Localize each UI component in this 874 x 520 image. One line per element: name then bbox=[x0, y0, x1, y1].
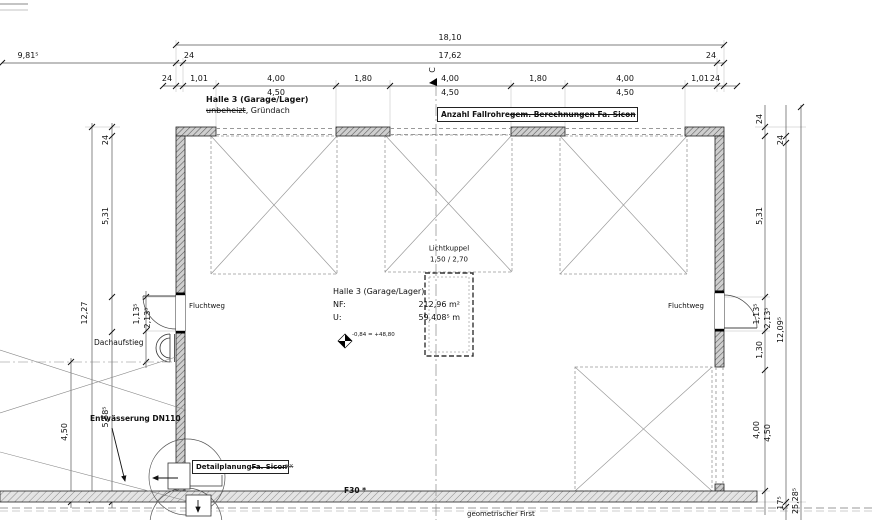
dimension-lines bbox=[2, 45, 801, 520]
fallrohre-note-text: Anzahl Fallrohre bbox=[441, 110, 510, 119]
lichtkuppel-label: Lichtkuppel bbox=[429, 246, 469, 253]
floor-plan: 18,10 9,81⁵ 24 17,62 24 24 1,01 4,00 1,8… bbox=[0, 0, 874, 520]
dim-left-bottom: 4,50 bbox=[61, 423, 69, 441]
hall-header-subtitle: unbeheizt, Gründach bbox=[206, 107, 290, 115]
axis-c-label: C bbox=[429, 67, 437, 73]
door-right bbox=[715, 291, 758, 332]
subtitle-rest-text: , Gründach bbox=[246, 106, 290, 115]
dim-top-left-offset: 9,81⁵ bbox=[17, 52, 38, 60]
wall-right-mid bbox=[715, 329, 724, 367]
wall-left-upper bbox=[176, 136, 185, 295]
dim-right-upper: 5,31 bbox=[756, 207, 764, 225]
dim-right-gate-axis: 4,50 bbox=[764, 424, 772, 442]
room-nf-value: 212,96 m² bbox=[390, 301, 460, 309]
room-level-value: -0,84 = +48,80 bbox=[352, 333, 395, 339]
wall-top-pillar-1 bbox=[336, 127, 390, 136]
dim-right-bottom: 17⁵ bbox=[777, 496, 785, 509]
geometrischer-first-label: geometrischer First bbox=[467, 511, 535, 518]
wall-right-upper bbox=[715, 136, 724, 293]
dim-right-wall-a: 24 bbox=[756, 114, 764, 124]
f30-label: F30 * bbox=[344, 487, 366, 495]
roof-ladder-symbol bbox=[156, 334, 175, 362]
room-nf-label: NF: bbox=[333, 301, 346, 309]
dim-right-door-full: 2,13⁵ bbox=[764, 307, 772, 328]
detailplanung-note-text: Detailplanung bbox=[196, 463, 252, 471]
room-u-value: 59,408⁵ m bbox=[390, 314, 460, 322]
top-openings bbox=[216, 129, 685, 135]
dim-left-wall: 24 bbox=[102, 135, 110, 145]
dim-seg-8: 24 bbox=[710, 75, 720, 83]
dim-seg-2: 4,00 bbox=[267, 75, 285, 83]
dim-right-wall-b: 24 bbox=[777, 135, 785, 145]
detailplanung-note-struck: Fa. Sicon bbox=[252, 463, 288, 471]
dim-right-mid: 1,30 bbox=[756, 341, 764, 359]
fluchtweg-left-label: Fluchtweg bbox=[189, 303, 225, 310]
dim-sub-1: 4,50 bbox=[441, 89, 459, 97]
dim-seg-4: 4,00 bbox=[441, 75, 459, 83]
downpipe-box-2 bbox=[186, 495, 211, 516]
dim-left-door-full: 2,13⁵ bbox=[144, 307, 152, 328]
reference-lines bbox=[0, 350, 874, 511]
dim-right-door-clear: 1,13⁵ bbox=[753, 303, 761, 324]
dim-top-wall-right: 24 bbox=[706, 52, 716, 60]
dim-left-total: 12,27 bbox=[81, 302, 89, 325]
entwaesserung-label: Entwässerung DN110 bbox=[90, 415, 181, 423]
subtitle-struck-text: unbeheizt bbox=[206, 106, 246, 115]
dachaufstieg-label: Dachaufstieg bbox=[94, 339, 144, 347]
wall-top-pillar-2 bbox=[511, 127, 565, 136]
dimension-ticks bbox=[0, 42, 804, 510]
wall-top-right bbox=[685, 127, 724, 136]
dim-left-door-clear: 1,13⁵ bbox=[133, 303, 141, 324]
level-marker-icon bbox=[338, 334, 352, 348]
dim-left-upper: 5,31 bbox=[102, 207, 110, 225]
dim-top-wall-left: 24 bbox=[184, 52, 194, 60]
detailplanung-note-box: Detailplanung Fa. Sicon bbox=[192, 460, 289, 474]
dim-seg-5: 1,80 bbox=[529, 75, 547, 83]
dim-seg-6: 4,00 bbox=[616, 75, 634, 83]
room-u-label: U: bbox=[333, 314, 342, 322]
dim-seg-1: 1,01 bbox=[190, 75, 208, 83]
dim-sub-2: 4,50 bbox=[616, 89, 634, 97]
fluchtweg-right-label: Fluchtweg bbox=[668, 303, 704, 310]
extension-lines bbox=[60, 40, 806, 502]
dim-top-inner: 17,62 bbox=[439, 52, 462, 60]
wall-bottom bbox=[0, 491, 757, 502]
dim-seg-7: 1,01 bbox=[691, 75, 709, 83]
axis-c-marker bbox=[429, 78, 437, 86]
hall-header-title: Halle 3 (Garage/Lager) bbox=[206, 96, 308, 104]
downpipe-box-1 bbox=[168, 463, 190, 489]
neighbour-edge-top-left bbox=[0, 4, 28, 10]
dim-right-overall: 25,28⁵ bbox=[792, 488, 800, 514]
lichtkuppel-size-label: 1,50 / 2,70 bbox=[430, 257, 468, 264]
dim-right-gate: 4,00 bbox=[753, 421, 761, 439]
dim-top-total: 18,10 bbox=[439, 34, 462, 42]
detailplanung-xx: xx bbox=[285, 463, 293, 470]
room-name: Halle 3 (Garage/Lager) bbox=[333, 288, 424, 296]
fallrohre-note-struck: gem. Berechnungen Fa. Sicon bbox=[510, 110, 636, 119]
dim-seg-0: 24 bbox=[162, 75, 172, 83]
dim-right-total: 12,09⁵ bbox=[777, 317, 785, 343]
right-gate-opening bbox=[716, 367, 723, 491]
fallrohre-note-box: Anzahl Fallrohre gem. Berechnungen Fa. S… bbox=[437, 107, 638, 122]
dim-seg-3: 1,80 bbox=[354, 75, 372, 83]
wall-top-left bbox=[176, 127, 216, 136]
